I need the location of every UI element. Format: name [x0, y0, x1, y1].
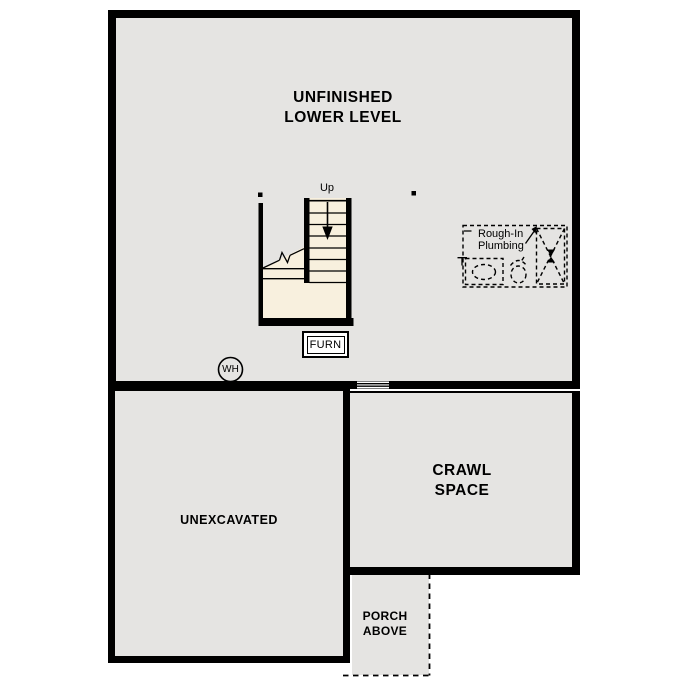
furnace-label: FURN: [307, 336, 345, 354]
unfinished-lower-level-label: UNFINISHED LOWER LEVEL: [284, 88, 401, 128]
window-symbol: [357, 382, 389, 389]
unexcavated-label: UNEXCAVATED: [180, 513, 278, 527]
vanity-sink-rough-in: [466, 259, 504, 285]
water-heater-label: WH: [222, 364, 239, 375]
plumbing-tick-marks: [458, 231, 472, 266]
post-marker-left: [258, 193, 263, 198]
staircase: [258, 191, 416, 326]
toilet-rough-in: [511, 261, 527, 284]
furnace-box: FURN: [302, 331, 349, 358]
porch-above-label: PORCH ABOVE: [363, 609, 408, 639]
tub-rough-in: [537, 229, 565, 285]
stairs-up-label: Up: [320, 182, 334, 194]
crawl-space-label: CRAWL SPACE: [432, 461, 491, 501]
post-marker-right: [412, 191, 417, 196]
floor-plan: UNFINISHED LOWER LEVEL Up Rough-In Plumb…: [0, 0, 687, 687]
rough-in-plumbing-label: Rough-In Plumbing: [478, 229, 524, 252]
